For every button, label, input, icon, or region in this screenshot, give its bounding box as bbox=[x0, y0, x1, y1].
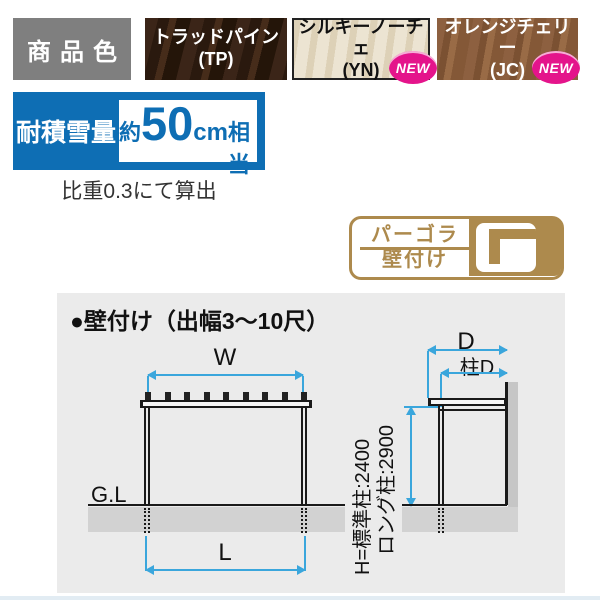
swatch-code: (JC) bbox=[490, 60, 525, 82]
front-beam bbox=[140, 400, 312, 408]
rafter-stubs bbox=[145, 392, 307, 400]
snow-load-number: 50 bbox=[141, 100, 193, 147]
snow-load-prefix: 約 bbox=[119, 115, 141, 147]
buried-post-left bbox=[144, 508, 150, 533]
swatch-code: (YN) bbox=[343, 60, 380, 82]
front-length-label: L bbox=[209, 539, 241, 567]
snow-load-banner: 耐積雪量 約50cm相当 bbox=[13, 92, 265, 170]
ground-band-side bbox=[402, 507, 518, 532]
post-d-dimension-arrow bbox=[441, 372, 507, 374]
front-width-label: W bbox=[209, 344, 241, 372]
ground-line-side bbox=[402, 504, 507, 506]
badge-divider bbox=[360, 247, 470, 250]
color-swatch-tp: トラッドパイン (TP) bbox=[145, 18, 287, 80]
snow-load-note: 比重0.3にて算出 bbox=[13, 175, 265, 205]
l-dimension-arrow bbox=[146, 569, 305, 571]
swatch-name: トラッドパイン bbox=[153, 27, 279, 49]
snow-load-value: 約50cm相当 bbox=[119, 100, 257, 162]
height-label-standard: H=標準柱:2400 bbox=[351, 375, 375, 575]
product-color-label: 商品色 bbox=[13, 18, 131, 80]
snow-load-unit: cm bbox=[193, 119, 228, 147]
side-post bbox=[438, 406, 444, 505]
badge-line2: 壁付け bbox=[382, 248, 448, 273]
new-badge-yn: NEW bbox=[389, 51, 437, 84]
post-depth-label: 柱D bbox=[453, 351, 501, 380]
pergola-icon-frame bbox=[476, 223, 536, 272]
snow-load-label: 耐積雪量 bbox=[13, 92, 119, 170]
d-extension-left bbox=[427, 351, 429, 398]
height-label: H=標準柱:2400 ロング柱:2900 bbox=[351, 375, 399, 575]
h-dimension-arrow bbox=[410, 407, 412, 506]
side-beam bbox=[428, 398, 507, 406]
dimension-diagram-panel: ●壁付け（出幅3～10尺） W G.L L D 柱D bbox=[57, 293, 565, 593]
swatch-code: (TP) bbox=[199, 49, 234, 71]
w-dimension-arrow bbox=[148, 374, 303, 376]
wall-mounted-pergola-icon bbox=[469, 219, 561, 276]
diagram-title: ●壁付け（出幅3～10尺） bbox=[70, 302, 329, 336]
bottom-divider bbox=[0, 596, 600, 600]
side-beam-underline bbox=[438, 409, 506, 411]
ground-line-front bbox=[88, 504, 345, 506]
height-label-long: ロング柱:2900 bbox=[375, 375, 399, 575]
new-badge-jc: NEW bbox=[532, 51, 580, 84]
pergola-post-bar bbox=[489, 229, 500, 263]
pergola-type-badge: パーゴラ 壁付け bbox=[349, 216, 564, 280]
product-spec-sheet: 商品色 トラッドパイン (TP) シルキーノーチェ (YN) オレンジチェリー … bbox=[0, 0, 600, 600]
buried-post-side bbox=[438, 508, 444, 533]
badge-line1: パーゴラ bbox=[371, 223, 459, 248]
front-post-right bbox=[301, 407, 307, 505]
buried-post-right bbox=[301, 508, 307, 533]
front-post-left bbox=[144, 407, 150, 505]
snow-load-suffix: 相当 bbox=[228, 115, 257, 179]
